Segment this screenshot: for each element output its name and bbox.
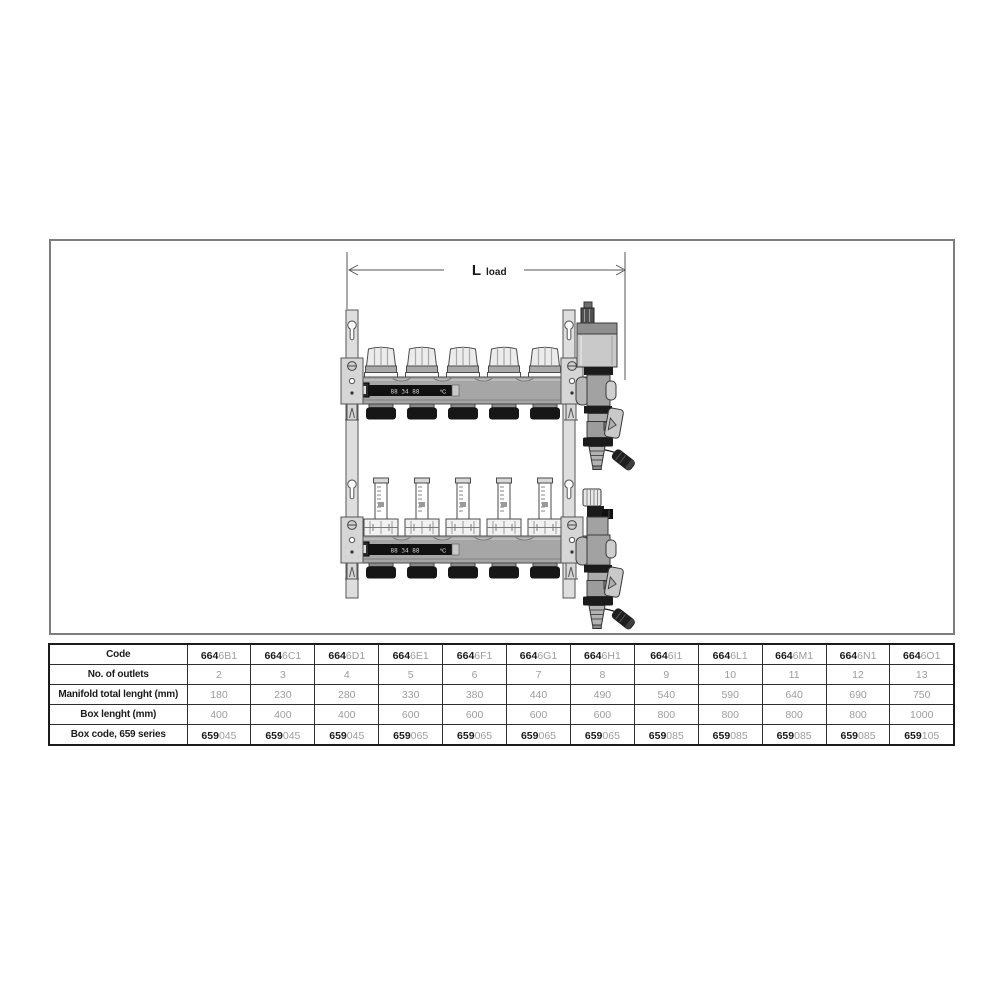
outlet-connection	[530, 563, 560, 579]
table-cell: 690	[826, 685, 890, 705]
code-suffix: 6G1	[537, 650, 557, 662]
code-suffix: 6F1	[474, 650, 492, 662]
table-cell: 8	[570, 665, 634, 685]
row-label: Box code, 659 series	[49, 725, 187, 746]
thermostatic-valve-cap	[406, 347, 439, 377]
outlet-connection	[407, 563, 437, 579]
drain-valve-with-hose	[583, 565, 637, 631]
air-vent-assembly	[576, 302, 617, 406]
table-cell: 7	[507, 665, 571, 685]
code-prefix: 664	[393, 650, 411, 662]
code-suffix: 6H1	[602, 650, 621, 662]
box-code-prefix: 659	[840, 730, 858, 742]
table-cell: 11	[762, 665, 826, 685]
table-row-box-length: Box lenght (mm) 400 400 400 600 600 600 …	[49, 705, 954, 725]
table-row-outlets: No. of outlets 2 3 4 5 6 7 8 9 10 11 12 …	[49, 665, 954, 685]
box-code-prefix: 659	[585, 730, 603, 742]
box-code-suffix: 045	[347, 730, 365, 742]
table-cell: 6646N1	[826, 644, 890, 665]
display-digits: 88 34 88	[391, 389, 420, 396]
code-suffix: 6C1	[282, 650, 301, 662]
bracket-clamp	[564, 404, 578, 420]
row-label: Manifold total lenght (mm)	[49, 685, 187, 705]
table-cell: 659105	[890, 725, 954, 746]
table-cell: 800	[634, 705, 698, 725]
return-manifold-bar: 88 34 88 °C	[357, 478, 586, 579]
table-cell: 6646C1	[251, 644, 315, 665]
dimension-label-load: load	[486, 267, 507, 278]
table-cell: 659045	[187, 725, 251, 746]
table-cell: 330	[379, 685, 443, 705]
thermostatic-valve-cap	[488, 347, 521, 377]
spec-table: Code 6646B1 6646C1 6646D1 6646E1 6646F1 …	[48, 643, 955, 746]
code-suffix: 6E1	[410, 650, 429, 662]
thermostatic-valve-cap	[447, 347, 480, 377]
drain-valve-with-hose	[583, 406, 637, 472]
table-cell: 800	[698, 705, 762, 725]
table-cell: 180	[187, 685, 251, 705]
outlet-connection	[530, 404, 560, 420]
thermostatic-valve-cap	[529, 347, 562, 377]
bracket-clamp	[345, 404, 359, 420]
outlet-connection	[366, 404, 396, 420]
wall-bracket	[341, 358, 363, 404]
table-cell: 600	[570, 705, 634, 725]
table-cell: 540	[634, 685, 698, 705]
table-cell: 2	[187, 665, 251, 685]
table-cell: 800	[762, 705, 826, 725]
code-prefix: 664	[201, 650, 219, 662]
datasheet-page: L load	[0, 0, 1000, 1000]
outlet-connection	[489, 404, 519, 420]
table-cell: 400	[187, 705, 251, 725]
box-code-suffix: 105	[922, 730, 940, 742]
table-cell: 6646L1	[698, 644, 762, 665]
box-code-suffix: 085	[666, 730, 684, 742]
flow-meter	[528, 478, 562, 536]
outlet-connection	[489, 563, 519, 579]
code-suffix: 6B1	[218, 650, 237, 662]
table-cell: 659085	[826, 725, 890, 746]
code-prefix: 664	[264, 650, 282, 662]
display-unit: °C	[440, 549, 446, 555]
table-cell: 3	[251, 665, 315, 685]
table-cell: 590	[698, 685, 762, 705]
box-code-prefix: 659	[329, 730, 347, 742]
temperature-display-strip: 88 34 88 °C	[368, 544, 459, 555]
flow-meter	[405, 478, 439, 536]
table-cell: 750	[890, 685, 954, 705]
table-row-manifold-length: Manifold total lenght (mm) 180 230 280 3…	[49, 685, 954, 705]
code-prefix: 664	[840, 650, 858, 662]
box-code-prefix: 659	[777, 730, 795, 742]
box-code-prefix: 659	[393, 730, 411, 742]
box-code-suffix: 065	[475, 730, 493, 742]
box-code-suffix: 065	[411, 730, 429, 742]
table-cell: 280	[315, 685, 379, 705]
table-cell: 800	[826, 705, 890, 725]
table-cell: 659085	[762, 725, 826, 746]
display-digits: 88 34 88	[391, 548, 420, 555]
box-code-prefix: 659	[521, 730, 539, 742]
supply-manifold-bar: 88 34 88 °C	[357, 347, 586, 420]
code-prefix: 664	[457, 650, 475, 662]
outlet-connection	[407, 404, 437, 420]
temperature-display-strip: 88 34 88 °C	[368, 385, 459, 396]
table-cell: 400	[251, 705, 315, 725]
table-cell: 6646B1	[187, 644, 251, 665]
table-cell: 6646G1	[507, 644, 571, 665]
table-cell: 6646O1	[890, 644, 954, 665]
table-cell: 600	[443, 705, 507, 725]
box-code-prefix: 659	[201, 730, 219, 742]
table-cell: 1000	[890, 705, 954, 725]
box-code-prefix: 659	[713, 730, 731, 742]
flow-meter	[487, 478, 521, 536]
bracket-clamp	[564, 563, 578, 579]
table-cell: 400	[315, 705, 379, 725]
code-prefix: 664	[328, 650, 346, 662]
code-prefix: 664	[520, 650, 538, 662]
box-code-prefix: 659	[904, 730, 922, 742]
flow-meter	[446, 478, 480, 536]
box-code-prefix: 659	[457, 730, 475, 742]
box-code-suffix: 085	[858, 730, 876, 742]
table-cell: 6646M1	[762, 644, 826, 665]
table-cell: 659065	[379, 725, 443, 746]
code-prefix: 664	[650, 650, 668, 662]
wall-bracket	[341, 517, 363, 563]
table-cell: 640	[762, 685, 826, 705]
code-prefix: 664	[775, 650, 793, 662]
box-code-suffix: 065	[602, 730, 620, 742]
box-code-prefix: 659	[649, 730, 667, 742]
table-cell: 6646E1	[379, 644, 443, 665]
box-code-suffix: 065	[538, 730, 556, 742]
technical-drawing-panel: L load	[49, 239, 955, 635]
table-cell: 10	[698, 665, 762, 685]
table-cell: 6646I1	[634, 644, 698, 665]
thermostatic-valve-cap	[365, 347, 398, 377]
table-cell: 230	[251, 685, 315, 705]
row-label: Box lenght (mm)	[49, 705, 187, 725]
outlet-connection	[366, 563, 396, 579]
table-cell: 9	[634, 665, 698, 685]
table-cell: 659085	[634, 725, 698, 746]
table-cell: 490	[570, 685, 634, 705]
table-cell: 380	[443, 685, 507, 705]
outlet-connection	[448, 404, 478, 420]
box-code-suffix: 085	[730, 730, 748, 742]
code-prefix: 664	[584, 650, 602, 662]
table-cell: 6646D1	[315, 644, 379, 665]
code-suffix: 6L1	[730, 650, 748, 662]
code-suffix: 6D1	[346, 650, 365, 662]
code-prefix: 664	[903, 650, 921, 662]
table-row-box-code: Box code, 659 series 659045 659045 65904…	[49, 725, 954, 746]
code-suffix: 6N1	[857, 650, 876, 662]
dimension-label-l: L	[472, 262, 481, 279]
table-cell: 6646F1	[443, 644, 507, 665]
outlet-connection	[448, 563, 478, 579]
code-suffix: 6I1	[668, 650, 683, 662]
table-cell: 659065	[507, 725, 571, 746]
table-cell: 6	[443, 665, 507, 685]
table-cell: 6646H1	[570, 644, 634, 665]
bracket-clamp	[345, 563, 359, 579]
table-cell: 600	[507, 705, 571, 725]
table-cell: 659065	[570, 725, 634, 746]
row-label: Code	[49, 644, 187, 665]
table-cell: 5	[379, 665, 443, 685]
box-code-suffix: 045	[283, 730, 301, 742]
table-cell: 4	[315, 665, 379, 685]
code-suffix: 6O1	[921, 650, 941, 662]
table-cell: 659045	[251, 725, 315, 746]
table-cell: 12	[826, 665, 890, 685]
table-row-code: Code 6646B1 6646C1 6646D1 6646E1 6646F1 …	[49, 644, 954, 665]
table-cell: 600	[379, 705, 443, 725]
table-cell: 13	[890, 665, 954, 685]
flow-meter	[364, 478, 398, 536]
manifold-drawing: L load	[51, 241, 953, 633]
table-cell: 659045	[315, 725, 379, 746]
code-suffix: 6M1	[793, 650, 813, 662]
table-cell: 659085	[698, 725, 762, 746]
row-label: No. of outlets	[49, 665, 187, 685]
box-code-suffix: 085	[794, 730, 812, 742]
box-code-suffix: 045	[219, 730, 237, 742]
display-unit: °C	[440, 390, 446, 396]
box-code-prefix: 659	[265, 730, 283, 742]
table-cell: 659065	[443, 725, 507, 746]
table-cell: 440	[507, 685, 571, 705]
code-prefix: 664	[713, 650, 731, 662]
